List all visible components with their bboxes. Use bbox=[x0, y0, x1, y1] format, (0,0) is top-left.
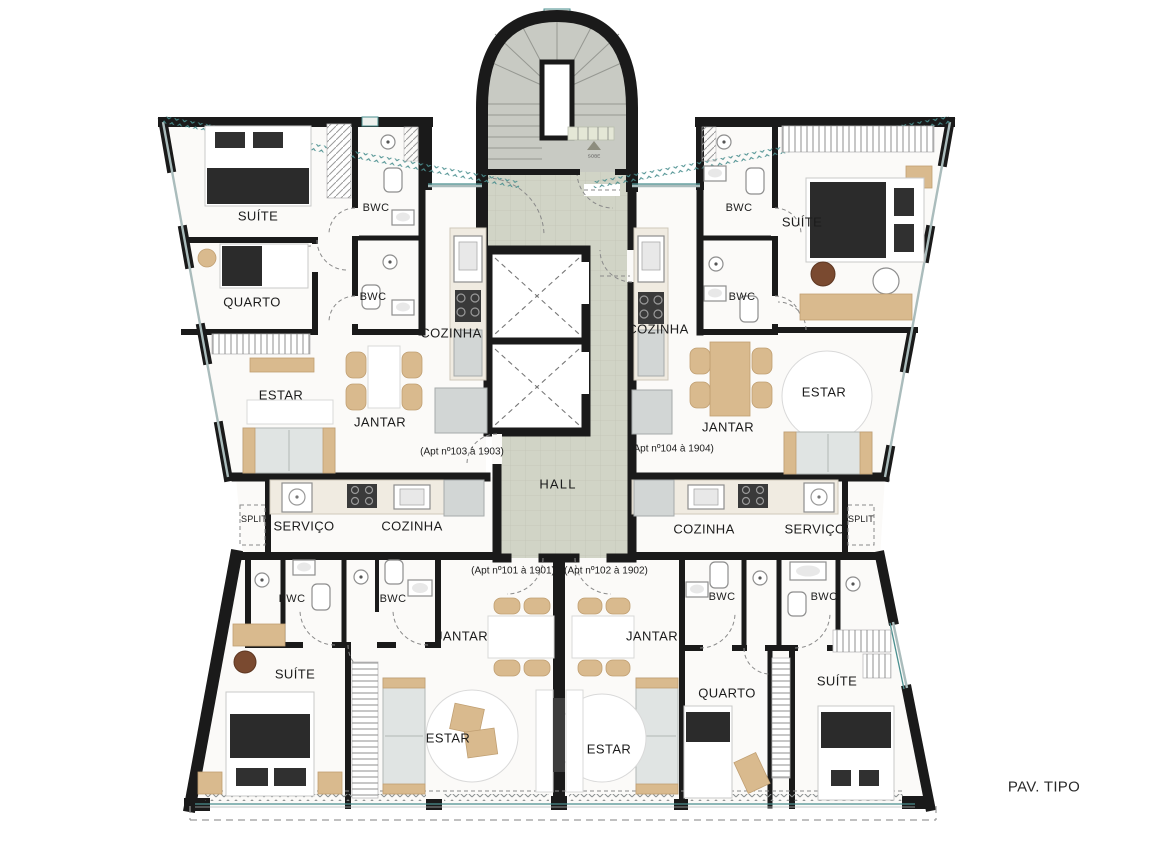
room-label-bwc2-apt102: BWC bbox=[811, 591, 838, 603]
elevator-door bbox=[580, 262, 589, 304]
room-label-quarto-apt102: QUARTO bbox=[698, 686, 756, 701]
apartment-note-apt102: (Apt nº102 à 1902) bbox=[564, 566, 648, 577]
room-label-jantar-apt101: JANTAR bbox=[436, 629, 488, 644]
apartment-note-apt103: (Apt nº103 à 1903) bbox=[420, 447, 504, 458]
floor-plan: SUÍTE QUARTO BWC BWC COZINHA ESTAR JANTA… bbox=[0, 0, 1174, 841]
room-label-jantar-apt103: JANTAR bbox=[354, 415, 406, 430]
room-label-bwc2-apt101: BWC bbox=[380, 593, 407, 605]
apartment-note-apt101: (Apt nº101 à 1901) bbox=[471, 566, 555, 577]
stairs-sobe-label: SOBE bbox=[588, 154, 601, 159]
apartment-note-apt104: (Apt nº104 à 1904) bbox=[630, 444, 714, 455]
room-label-servico-apt101: SERVIÇO bbox=[273, 519, 334, 534]
room-label-bwc1-apt102: BWC bbox=[709, 591, 736, 603]
room-label-suite-apt102: SUÍTE bbox=[817, 674, 857, 689]
floor-title: PAV. TIPO bbox=[1008, 779, 1080, 796]
room-label-bwc1-apt101: BWC bbox=[279, 593, 306, 605]
room-label-split-apt102: SPLIT bbox=[848, 514, 874, 524]
room-label-cozinha-apt103: COZINHA bbox=[420, 326, 481, 341]
room-label-cozinha-apt102: COZINHA bbox=[673, 522, 734, 537]
room-label-estar-apt101: ESTAR bbox=[426, 731, 470, 746]
room-label-suite-apt101: SUÍTE bbox=[275, 667, 315, 682]
room-label-cozinha-apt101: COZINHA bbox=[381, 519, 442, 534]
hall-label: HALL bbox=[539, 477, 576, 492]
room-label-bwc1-apt103: BWC bbox=[363, 202, 390, 214]
room-label-bwc2-apt103: BWC bbox=[360, 291, 387, 303]
room-label-jantar-apt104: JANTAR bbox=[702, 420, 754, 435]
room-label-servico-apt102: SERVIÇO bbox=[784, 522, 845, 537]
room-label-split-apt101: SPLIT bbox=[241, 514, 267, 524]
room-label-suite-apt103: SUÍTE bbox=[238, 209, 278, 224]
floor-plan-drawing bbox=[0, 0, 1174, 841]
room-label-bwc1-apt104: BWC bbox=[726, 202, 753, 214]
tv-panel bbox=[553, 698, 565, 772]
room-label-quarto-apt103: QUARTO bbox=[223, 295, 281, 310]
elevator-door bbox=[580, 352, 589, 394]
room-label-estar-apt102: ESTAR bbox=[587, 742, 631, 757]
room-label-jantar-apt102: JANTAR bbox=[626, 629, 678, 644]
elevators bbox=[488, 250, 589, 432]
room-label-cozinha-apt104: COZINHA bbox=[627, 322, 688, 337]
room-label-bwc2-apt104: BWC bbox=[729, 291, 756, 303]
room-label-suite-apt104: SUÍTE bbox=[782, 215, 822, 230]
room-label-estar-apt104: ESTAR bbox=[802, 385, 846, 400]
room-label-estar-apt103: ESTAR bbox=[259, 388, 303, 403]
